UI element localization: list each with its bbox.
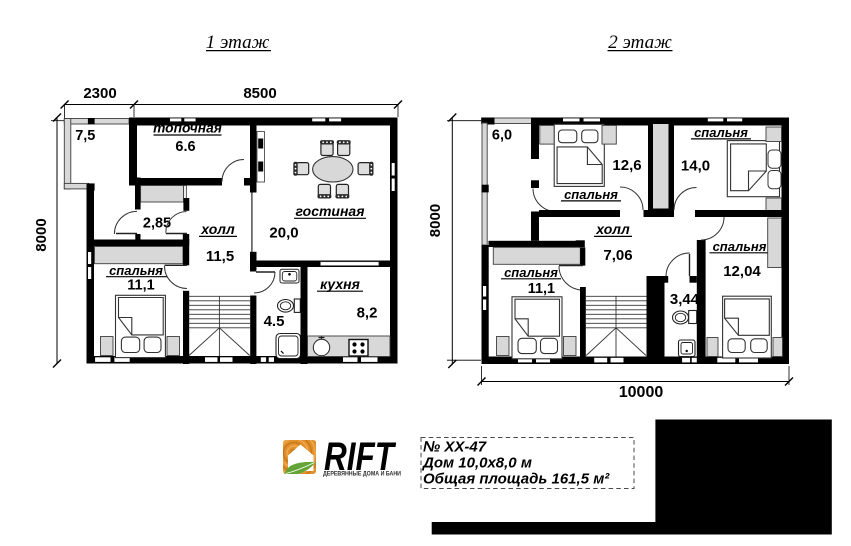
svg-text:12,6: 12,6 — [612, 157, 641, 174]
svg-text:10000: 10000 — [619, 384, 664, 401]
svg-text:3,44: 3,44 — [670, 291, 700, 308]
svg-text:холл: холл — [595, 221, 630, 237]
svg-text:7,5: 7,5 — [75, 128, 95, 144]
svg-text:спальня: спальня — [564, 187, 618, 202]
svg-text:2 этаж: 2 этаж — [608, 32, 672, 53]
svg-text:ДЕРЕВЯННЫЕ ДОМА И БАНИ: ДЕРЕВЯННЫЕ ДОМА И БАНИ — [323, 471, 401, 477]
svg-text:11,1: 11,1 — [528, 281, 555, 297]
svg-text:8,2: 8,2 — [357, 305, 378, 322]
svg-text:11,1: 11,1 — [127, 278, 154, 294]
svg-text:2300: 2300 — [83, 85, 116, 102]
svg-text:6.6: 6.6 — [175, 139, 195, 155]
svg-text:Общая площадь 161,5 м²: Общая площадь 161,5 м² — [423, 471, 610, 488]
svg-text:спальня: спальня — [694, 125, 748, 140]
svg-text:12,04: 12,04 — [723, 263, 761, 280]
svg-text:8000: 8000 — [427, 204, 444, 237]
svg-text:кухня: кухня — [320, 276, 360, 292]
svg-text:спальня: спальня — [109, 263, 163, 278]
svg-text:7,06: 7,06 — [603, 247, 632, 264]
svg-text:14,0: 14,0 — [681, 158, 710, 175]
svg-text:6,0: 6,0 — [492, 128, 512, 144]
svg-text:1 этаж: 1 этаж — [206, 32, 270, 53]
svg-text:20,0: 20,0 — [269, 225, 298, 242]
svg-text:№ ХХ-47: № ХХ-47 — [423, 439, 487, 456]
svg-text:гостиная: гостиная — [296, 203, 365, 219]
svg-text:Дом 10,0х8,0 м: Дом 10,0х8,0 м — [421, 455, 532, 472]
svg-text:4.5: 4.5 — [264, 313, 285, 330]
svg-text:спальня: спальня — [713, 239, 767, 254]
svg-text:8000: 8000 — [33, 218, 50, 251]
svg-text:спальня: спальня — [504, 265, 558, 280]
svg-text:топочная: топочная — [153, 121, 222, 136]
svg-text:холл: холл — [200, 221, 235, 237]
svg-text:2,85: 2,85 — [143, 216, 171, 232]
svg-text:11,5: 11,5 — [206, 248, 234, 265]
svg-text:8500: 8500 — [243, 85, 276, 102]
